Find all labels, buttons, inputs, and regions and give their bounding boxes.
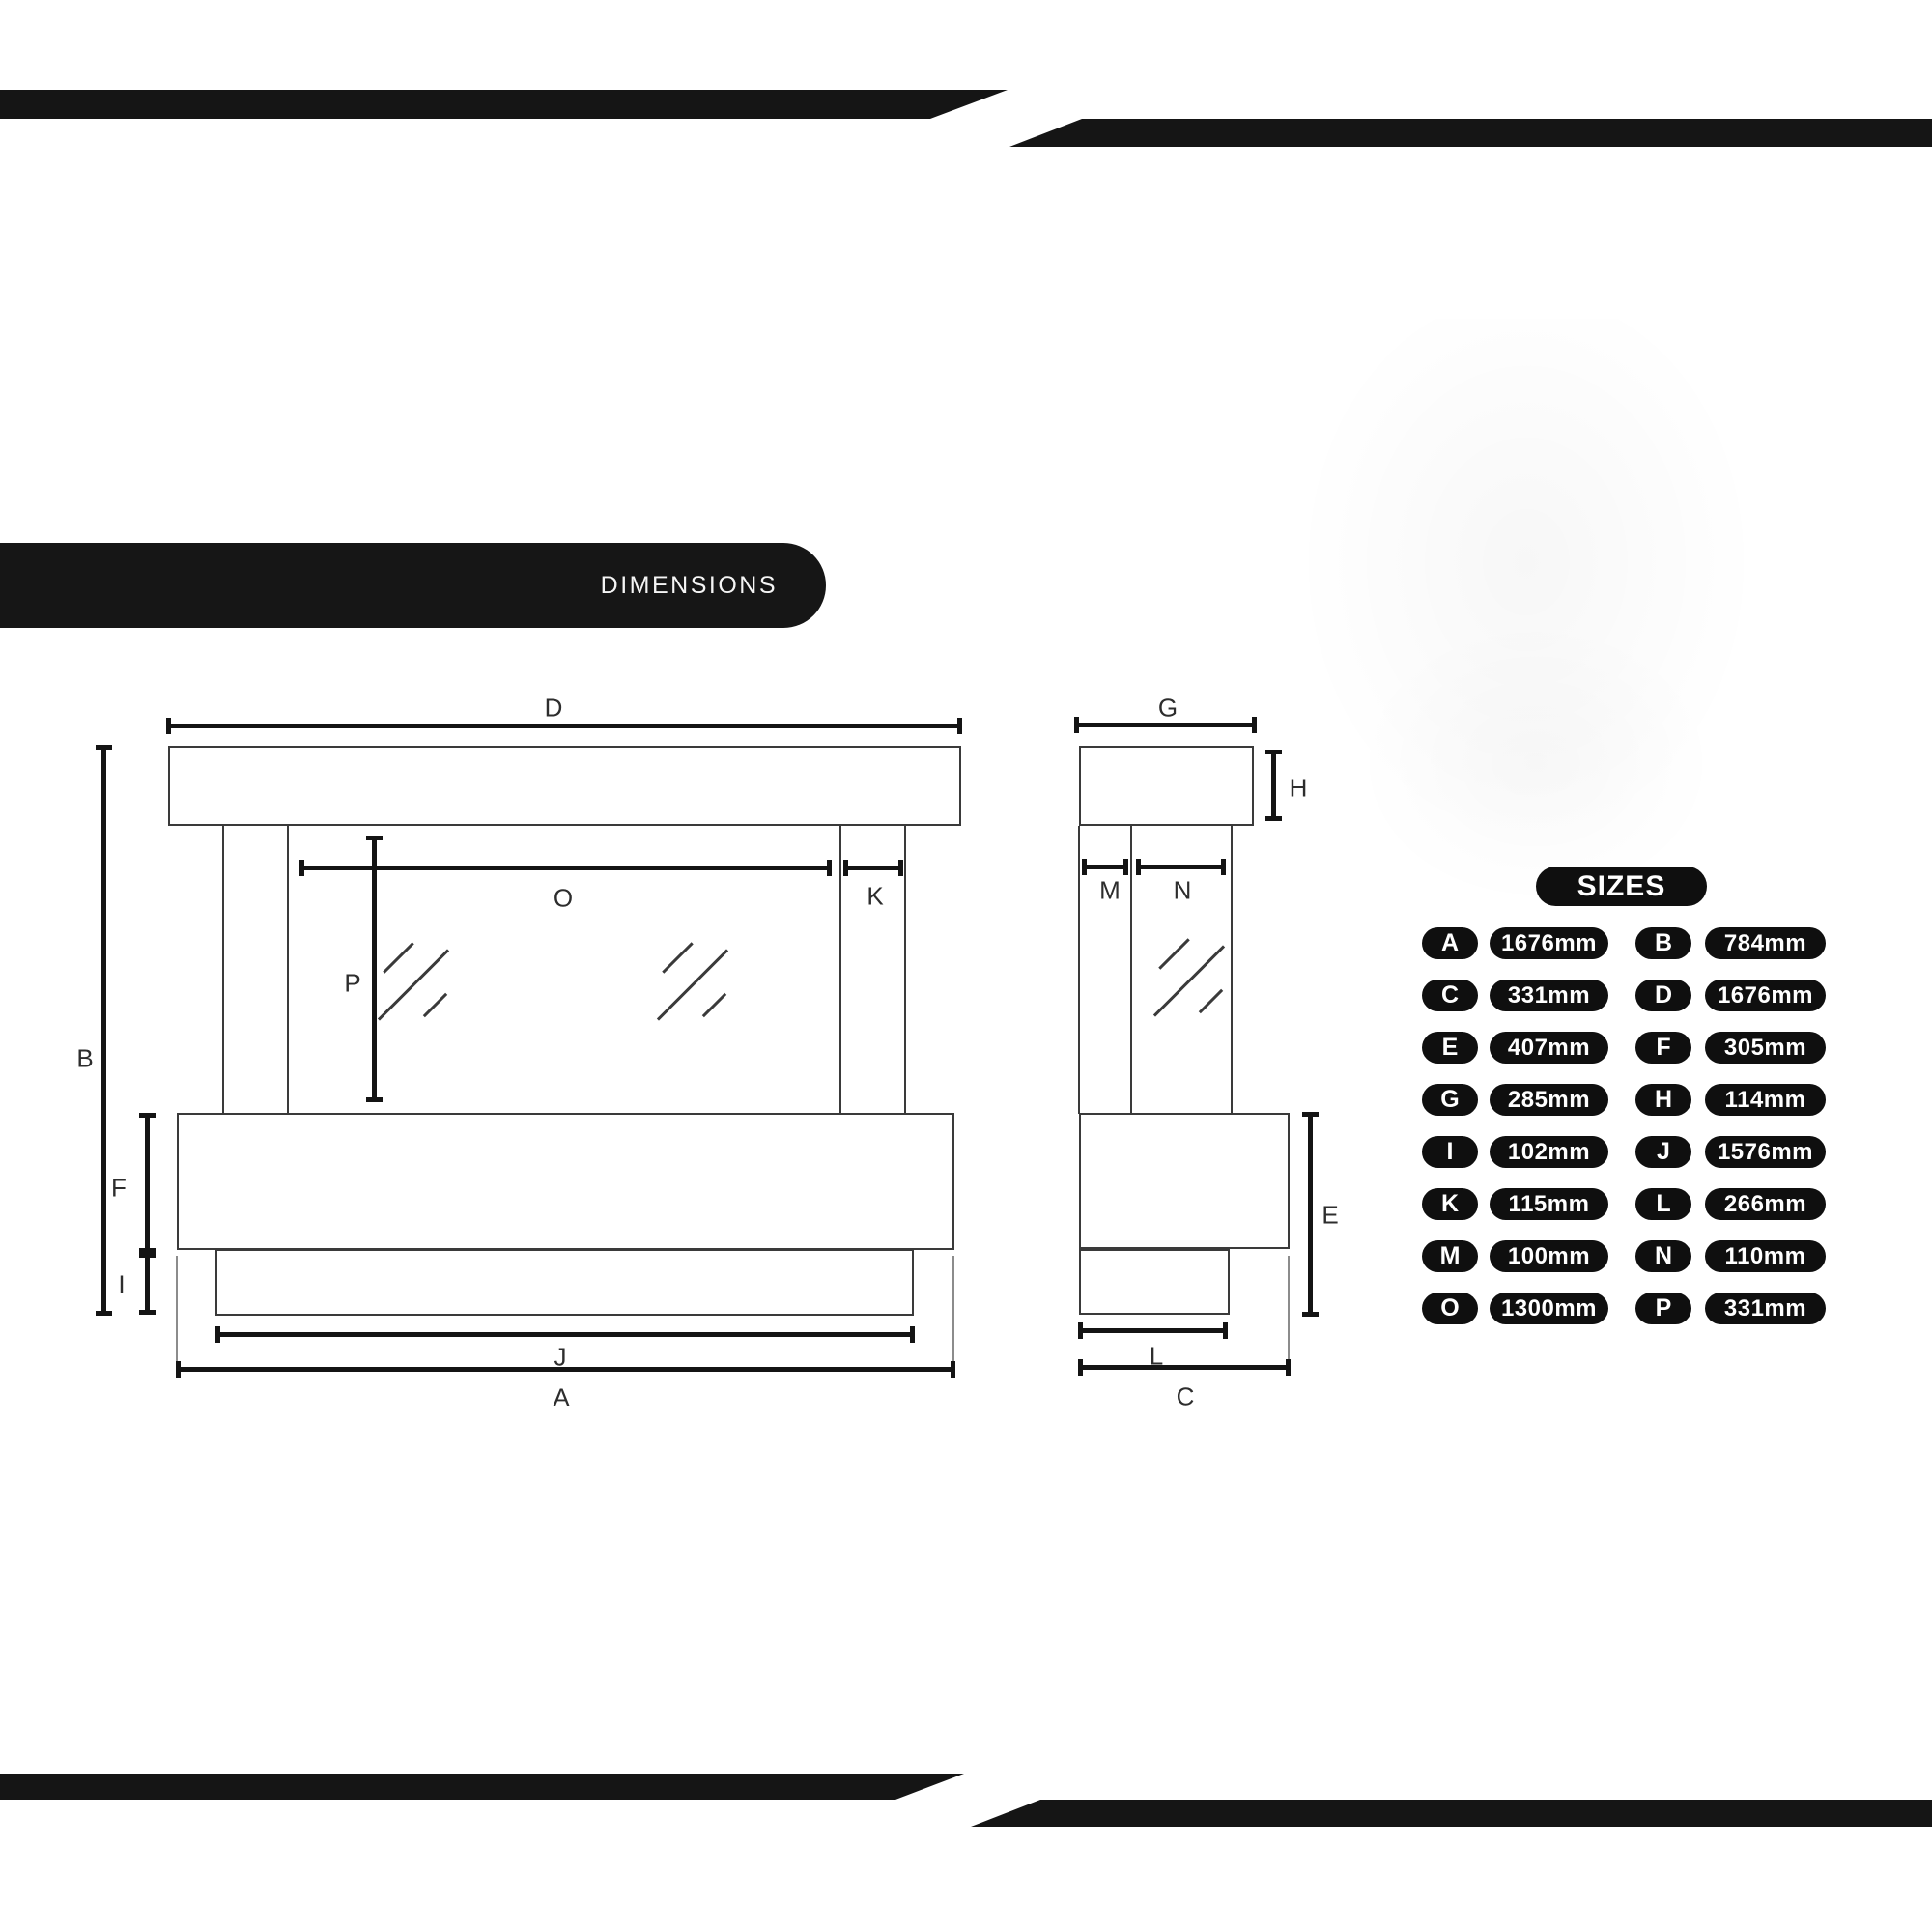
side-body-divider-edge (1130, 826, 1132, 1114)
dim-label-o: O (554, 884, 573, 914)
side-base-outline (1079, 1113, 1290, 1249)
dim-label-e: E (1321, 1201, 1338, 1231)
dim-label-c: C (1177, 1382, 1195, 1412)
background-smudge (1352, 618, 1719, 908)
sizes-row: K 115mm L 266mm (1422, 1188, 1826, 1220)
dim-label-h: H (1290, 774, 1308, 804)
size-value-badge: 102mm (1490, 1136, 1608, 1168)
dim-label-a: A (553, 1383, 569, 1413)
sizes-title-pill: SIZES (1536, 867, 1707, 906)
extension-line (1288, 1256, 1290, 1367)
size-value-badge: 110mm (1705, 1240, 1826, 1272)
dim-label-g: G (1158, 694, 1178, 724)
size-letter-badge: K (1422, 1188, 1478, 1220)
dim-label-d: D (545, 694, 563, 724)
hatch-stroke (702, 993, 726, 1017)
front-left-pillar-outer-edge (222, 826, 224, 1114)
size-letter-badge: L (1635, 1188, 1691, 1220)
glass-hatch-icon (1154, 939, 1232, 1016)
dim-label-i: I (118, 1270, 125, 1300)
hatch-stroke (1153, 945, 1225, 1016)
size-letter-badge: O (1422, 1293, 1478, 1324)
dim-line-a (177, 1367, 954, 1372)
extension-line (952, 1256, 954, 1370)
size-letter-badge: J (1635, 1136, 1691, 1168)
size-value-badge: 1676mm (1490, 927, 1608, 959)
dim-line-g (1075, 723, 1256, 727)
dim-line-p (372, 837, 377, 1101)
dim-line-d (167, 724, 961, 728)
sizes-row: C 331mm D 1676mm (1422, 980, 1826, 1011)
sizes-title-label: SIZES (1577, 870, 1666, 903)
dim-line-e (1308, 1113, 1313, 1316)
front-plinth-outline (215, 1249, 914, 1316)
dim-label-m: M (1099, 876, 1121, 906)
dim-line-l (1079, 1328, 1227, 1333)
glass-hatch-icon (658, 943, 735, 1020)
front-left-pillar-inner-edge (287, 826, 289, 1114)
dimensions-header-pill: DIMENSIONS (0, 543, 826, 628)
size-letter-badge: A (1422, 927, 1478, 959)
top-banner-left (0, 90, 1008, 119)
size-letter-badge: B (1635, 927, 1691, 959)
front-shelf-outline (168, 746, 961, 826)
side-plinth-outline (1079, 1249, 1230, 1315)
size-value-badge: 285mm (1490, 1084, 1608, 1116)
size-letter-badge: N (1635, 1240, 1691, 1272)
hatch-stroke (1199, 989, 1223, 1013)
glass-hatch-icon (379, 943, 456, 1020)
dim-label-f: F (111, 1174, 127, 1204)
dim-line-c (1079, 1365, 1290, 1370)
sizes-table: A 1676mm B 784mm C 331mm D 1676mm E 407m… (1422, 927, 1826, 1345)
size-letter-badge: D (1635, 980, 1691, 1011)
front-right-pillar-outer-edge (904, 826, 906, 1114)
size-letter-badge: P (1635, 1293, 1691, 1324)
hatch-stroke (383, 942, 414, 974)
dim-label-k: K (867, 882, 883, 912)
size-letter-badge: E (1422, 1032, 1478, 1064)
extension-line (176, 1256, 178, 1370)
sizes-row: O 1300mm P 331mm (1422, 1293, 1826, 1324)
sizes-row: M 100mm N 110mm (1422, 1240, 1826, 1272)
dimensions-header-label: DIMENSIONS (601, 572, 778, 600)
side-body-back-edge (1078, 826, 1080, 1114)
hatch-stroke (657, 949, 728, 1020)
size-letter-badge: C (1422, 980, 1478, 1011)
size-value-badge: 1676mm (1705, 980, 1826, 1011)
dim-line-h (1271, 751, 1276, 820)
dim-line-b (101, 746, 106, 1315)
sizes-row: I 102mm J 1576mm (1422, 1136, 1826, 1168)
hatch-stroke (1158, 938, 1190, 970)
size-value-badge: 114mm (1705, 1084, 1826, 1116)
size-value-badge: 1300mm (1490, 1293, 1608, 1324)
size-letter-badge: I (1422, 1136, 1478, 1168)
dim-line-j (216, 1332, 914, 1337)
top-banner-right (1009, 119, 1932, 147)
sizes-row: A 1676mm B 784mm (1422, 927, 1826, 959)
size-value-badge: 331mm (1705, 1293, 1826, 1324)
sizes-row: G 285mm H 114mm (1422, 1084, 1826, 1116)
size-letter-badge: H (1635, 1084, 1691, 1116)
dim-label-n: N (1174, 876, 1192, 906)
size-value-badge: 1576mm (1705, 1136, 1826, 1168)
dim-label-b: B (76, 1044, 93, 1074)
dim-line-n (1137, 865, 1225, 869)
size-value-badge: 331mm (1490, 980, 1608, 1011)
dim-label-p: P (344, 969, 360, 999)
dim-line-k (844, 866, 902, 870)
size-value-badge: 266mm (1705, 1188, 1826, 1220)
sizes-row: E 407mm F 305mm (1422, 1032, 1826, 1064)
size-value-badge: 100mm (1490, 1240, 1608, 1272)
size-value-badge: 784mm (1705, 927, 1826, 959)
bottom-banner-right (971, 1800, 1932, 1827)
size-value-badge: 407mm (1490, 1032, 1608, 1064)
background-smudge (1285, 319, 1768, 860)
dimensions-sheet: DIMENSIONS D B O K P (0, 0, 1932, 1932)
hatch-stroke (378, 949, 449, 1020)
hatch-stroke (662, 942, 694, 974)
dim-line-f (145, 1114, 150, 1252)
size-letter-badge: G (1422, 1084, 1478, 1116)
size-letter-badge: F (1635, 1032, 1691, 1064)
front-right-pillar-inner-edge (839, 826, 841, 1114)
dim-line-m (1083, 865, 1127, 869)
side-shelf-outline (1079, 746, 1254, 826)
front-base-outline (177, 1113, 954, 1250)
dim-line-o (300, 866, 831, 870)
hatch-stroke (423, 993, 447, 1017)
bottom-banner-left (0, 1774, 964, 1800)
size-value-badge: 115mm (1490, 1188, 1608, 1220)
dim-line-i (145, 1254, 150, 1314)
size-letter-badge: M (1422, 1240, 1478, 1272)
size-value-badge: 305mm (1705, 1032, 1826, 1064)
